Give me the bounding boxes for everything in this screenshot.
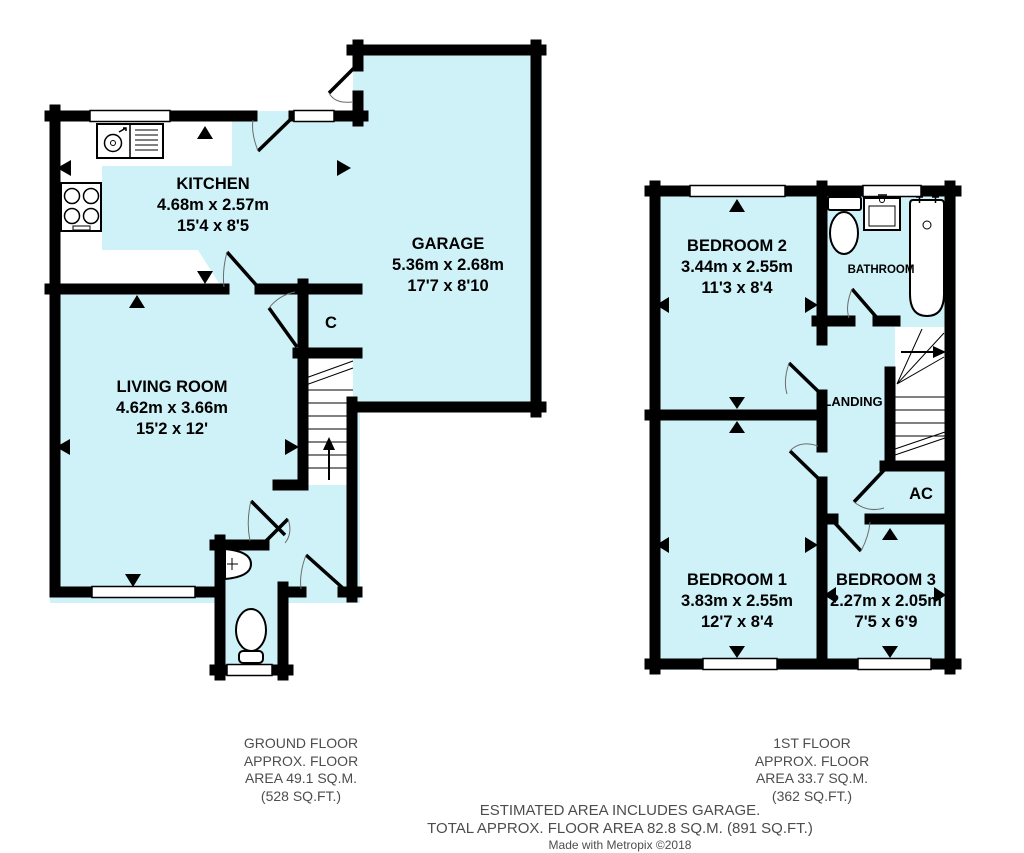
ground-floor-caption: GROUND FLOOR APPROX. FLOOR AREA 49.1 SQ.…	[244, 735, 358, 805]
label-bedroom-1: BEDROOM 1 3.83m x 2.55m 12'7 x 8'4	[681, 570, 793, 633]
room-dims-metric: 4.62m x 3.66m	[116, 398, 228, 419]
room-dims-metric: 3.83m x 2.55m	[681, 591, 793, 612]
toilet-icon	[828, 197, 861, 254]
kitchen-sink-icon	[97, 124, 163, 158]
room-dims-imperial: 7'5 x 6'9	[830, 612, 942, 633]
room-name: AC	[909, 484, 933, 505]
garage-floor	[353, 45, 542, 412]
room-name: BATHROOM	[848, 260, 915, 281]
room-dims-imperial: 11'3 x 8'4	[681, 278, 793, 299]
room-name: KITCHEN	[157, 174, 269, 195]
caption-line: GROUND FLOOR	[244, 735, 358, 753]
caption-line: (528 SQ.FT.)	[244, 788, 358, 806]
metropix-credit: Made with Metropix ©2018	[427, 837, 813, 853]
toilet-icon	[236, 609, 266, 663]
label-landing: LANDING	[823, 391, 882, 412]
room-dims-metric: 3.44m x 2.55m	[681, 257, 793, 278]
label-bedroom-3: BEDROOM 3 2.27m x 2.05m 7'5 x 6'9	[830, 570, 942, 633]
caption-line: APPROX. FLOOR	[755, 753, 869, 771]
label-bedroom-2: BEDROOM 2 3.44m x 2.55m 11'3 x 8'4	[681, 236, 793, 299]
bath-icon	[910, 197, 944, 316]
room-name: GARAGE	[392, 234, 504, 255]
floor-plan: KITCHEN 4.68m x 2.57m 15'4 x 8'5 GARAGE …	[0, 0, 1024, 853]
footer-line2: TOTAL APPROX. FLOOR AREA 82.8 SQ.M. (891…	[427, 820, 813, 838]
label-bathroom: BATHROOM	[848, 260, 915, 281]
label-living-room: LIVING ROOM 4.62m x 3.66m 15'2 x 12'	[116, 377, 228, 440]
label-garage: GARAGE 5.36m x 2.68m 17'7 x 8'10	[392, 234, 504, 297]
ground-floor-plan	[50, 45, 542, 676]
caption-line: APPROX. FLOOR	[244, 753, 358, 771]
hob-icon	[61, 183, 101, 231]
room-name: C	[325, 313, 337, 334]
estimate-footer: ESTIMATED AREA INCLUDES GARAGE. TOTAL AP…	[427, 802, 813, 853]
caption-line: 1ST FLOOR	[755, 735, 869, 753]
caption-line: AREA 33.7 SQ.M.	[755, 770, 869, 788]
room-dims-imperial: 12'7 x 8'4	[681, 612, 793, 633]
room-name: LANDING	[823, 391, 882, 412]
room-name: BEDROOM 1	[681, 570, 793, 591]
room-name: BEDROOM 2	[681, 236, 793, 257]
room-dims-imperial: 17'7 x 8'10	[392, 276, 504, 297]
basin-icon	[864, 195, 900, 230]
label-airing-cupboard: AC	[909, 484, 933, 505]
room-name: LIVING ROOM	[116, 377, 228, 398]
first-floor-caption: 1ST FLOOR APPROX. FLOOR AREA 33.7 SQ.M. …	[755, 735, 869, 805]
label-cupboard: C	[325, 313, 337, 334]
room-dims-imperial: 15'2 x 12'	[116, 419, 228, 440]
label-kitchen: KITCHEN 4.68m x 2.57m 15'4 x 8'5	[157, 174, 269, 237]
room-name: BEDROOM 3	[830, 570, 942, 591]
caption-line: AREA 49.1 SQ.M.	[244, 770, 358, 788]
room-dims-metric: 5.36m x 2.68m	[392, 255, 504, 276]
footer-line1: ESTIMATED AREA INCLUDES GARAGE.	[427, 802, 813, 820]
room-dims-imperial: 15'4 x 8'5	[157, 216, 269, 237]
room-dims-metric: 4.68m x 2.57m	[157, 195, 269, 216]
room-dims-metric: 2.27m x 2.05m	[830, 591, 942, 612]
